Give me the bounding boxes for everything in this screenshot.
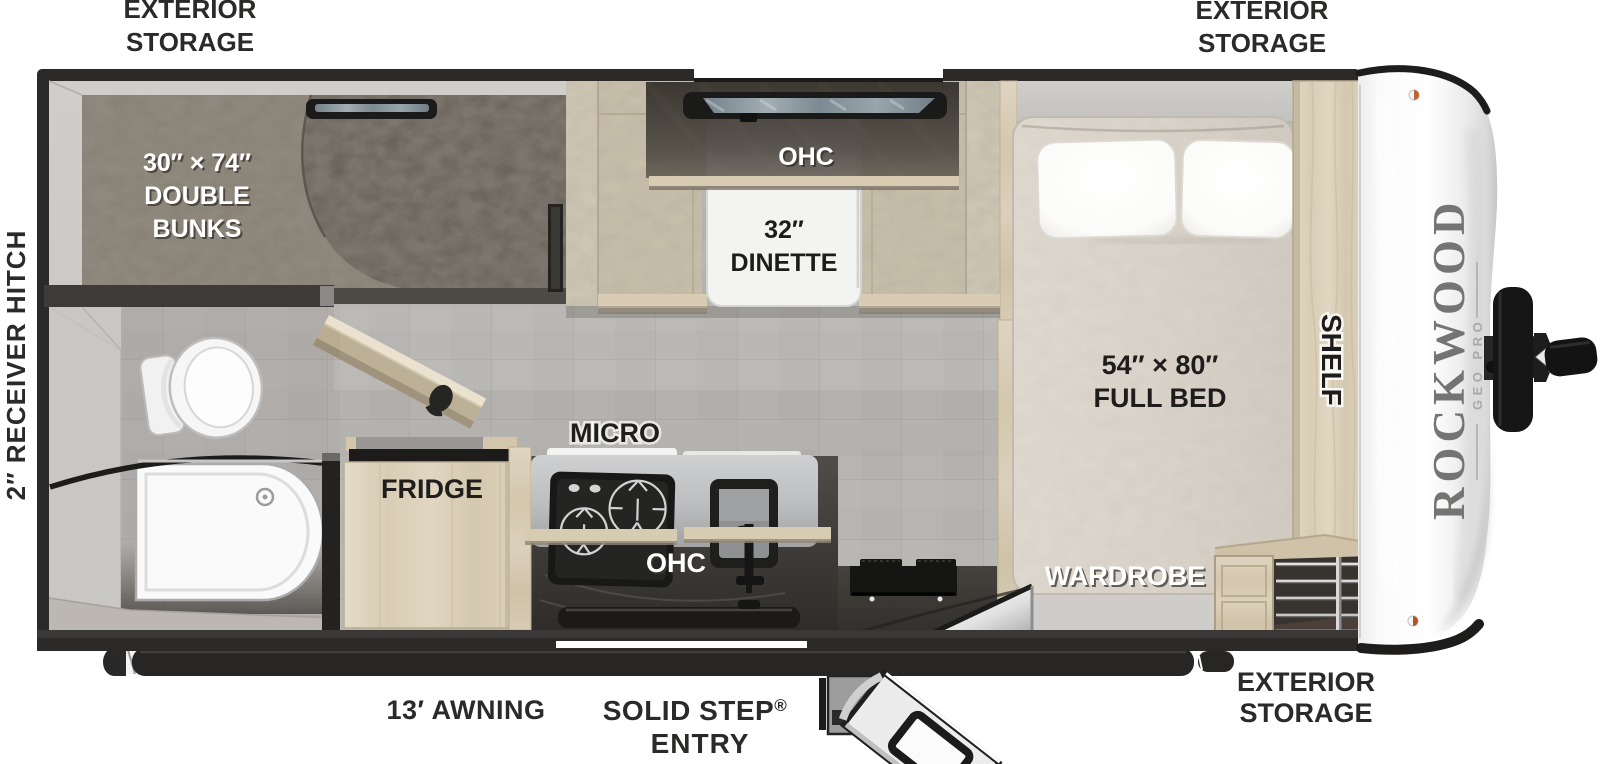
- svg-text:STORAGE: STORAGE: [1239, 698, 1372, 728]
- svg-text:STORAGE: STORAGE: [126, 27, 254, 57]
- svg-text:ENTRY: ENTRY: [651, 728, 750, 759]
- svg-text:MICRO: MICRO: [570, 418, 660, 448]
- svg-text:GEO PRO: GEO PRO: [1470, 318, 1485, 410]
- svg-text:SOLID STEP®: SOLID STEP®: [603, 695, 788, 726]
- svg-text:32″: 32″: [764, 216, 804, 244]
- svg-text:SHELF: SHELF: [1316, 314, 1347, 406]
- svg-text:WARDROBE: WARDROBE: [1045, 561, 1206, 591]
- svg-text:STORAGE: STORAGE: [1198, 28, 1326, 58]
- svg-text:30″ × 74″: 30″ × 74″: [143, 149, 251, 177]
- svg-text:54″ × 80″: 54″ × 80″: [1102, 350, 1219, 380]
- svg-text:FRIDGE: FRIDGE: [381, 474, 483, 504]
- svg-text:OHC: OHC: [646, 548, 706, 578]
- svg-text:DINETTE: DINETTE: [731, 249, 838, 277]
- svg-text:13′ AWNING: 13′ AWNING: [387, 695, 546, 725]
- svg-text:BUNKS: BUNKS: [153, 215, 242, 243]
- svg-text:ROCKWOOD: ROCKWOOD: [1424, 197, 1474, 520]
- svg-text:OHC: OHC: [778, 143, 834, 171]
- svg-text:EXTERIOR: EXTERIOR: [1196, 0, 1329, 25]
- svg-text:EXTERIOR: EXTERIOR: [124, 0, 257, 24]
- svg-text:FULL BED: FULL BED: [1094, 383, 1227, 413]
- svg-text:2″ RECEIVER HITCH: 2″ RECEIVER HITCH: [1, 230, 31, 501]
- svg-text:EXTERIOR: EXTERIOR: [1237, 667, 1375, 697]
- svg-text:DOUBLE: DOUBLE: [144, 182, 250, 210]
